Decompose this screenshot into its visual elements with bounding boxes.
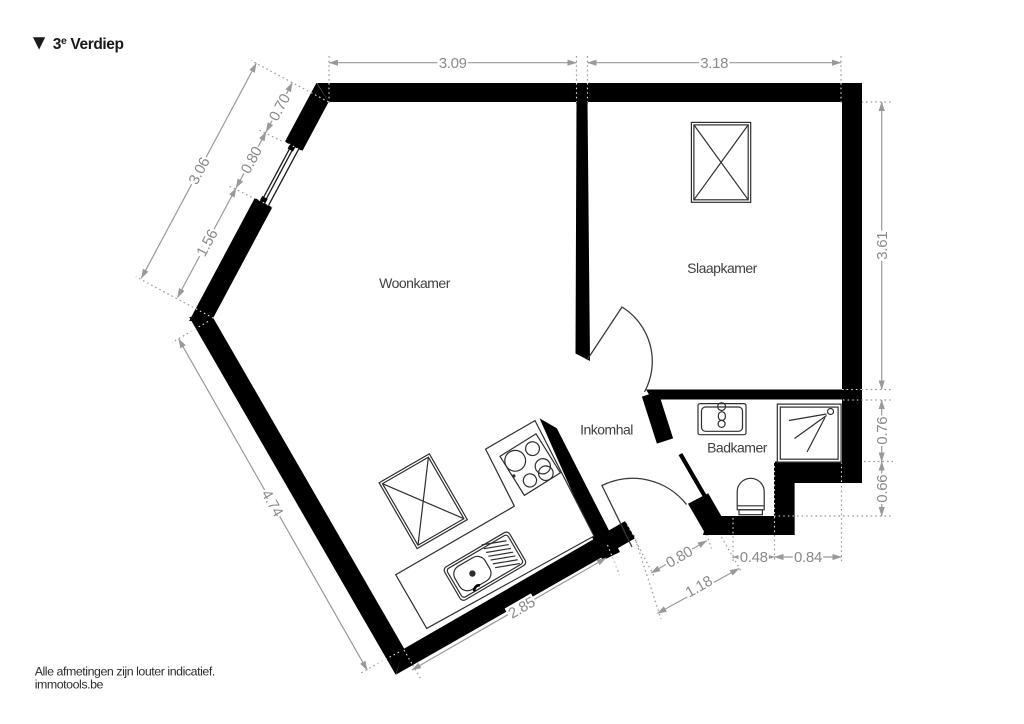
svg-text:0.84: 0.84: [794, 549, 822, 566]
svg-text:immotools.be: immotools.be: [35, 678, 104, 692]
svg-text:Badkamer: Badkamer: [707, 440, 768, 456]
svg-text:3.09: 3.09: [439, 55, 467, 72]
svg-text:3.61: 3.61: [874, 232, 891, 260]
svg-text:Inkomhal: Inkomhal: [580, 421, 633, 437]
svg-text:3.18: 3.18: [700, 55, 728, 72]
svg-text:0.76: 0.76: [874, 417, 891, 445]
svg-text:Alle afmetingen zijn louter in: Alle afmetingen zijn louter indicatief.: [35, 664, 215, 678]
svg-text:0.48: 0.48: [740, 549, 768, 566]
svg-text:Woonkamer: Woonkamer: [379, 275, 451, 291]
svg-text:Slaapkamer: Slaapkamer: [687, 260, 758, 276]
svg-text:0.66: 0.66: [874, 475, 891, 503]
